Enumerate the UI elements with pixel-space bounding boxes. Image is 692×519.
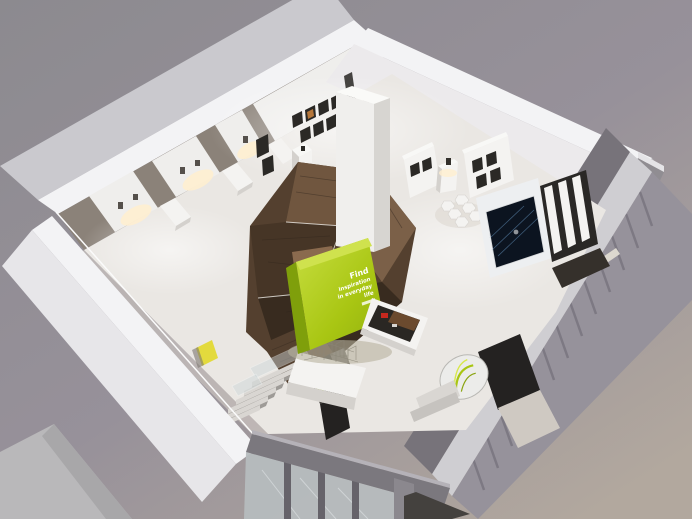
red-product [381, 313, 388, 318]
white-column [336, 86, 390, 252]
render-canvas: Find inspiration in everyday life [0, 0, 692, 519]
showroom-3d-render: Find inspiration in everyday life [0, 0, 692, 519]
